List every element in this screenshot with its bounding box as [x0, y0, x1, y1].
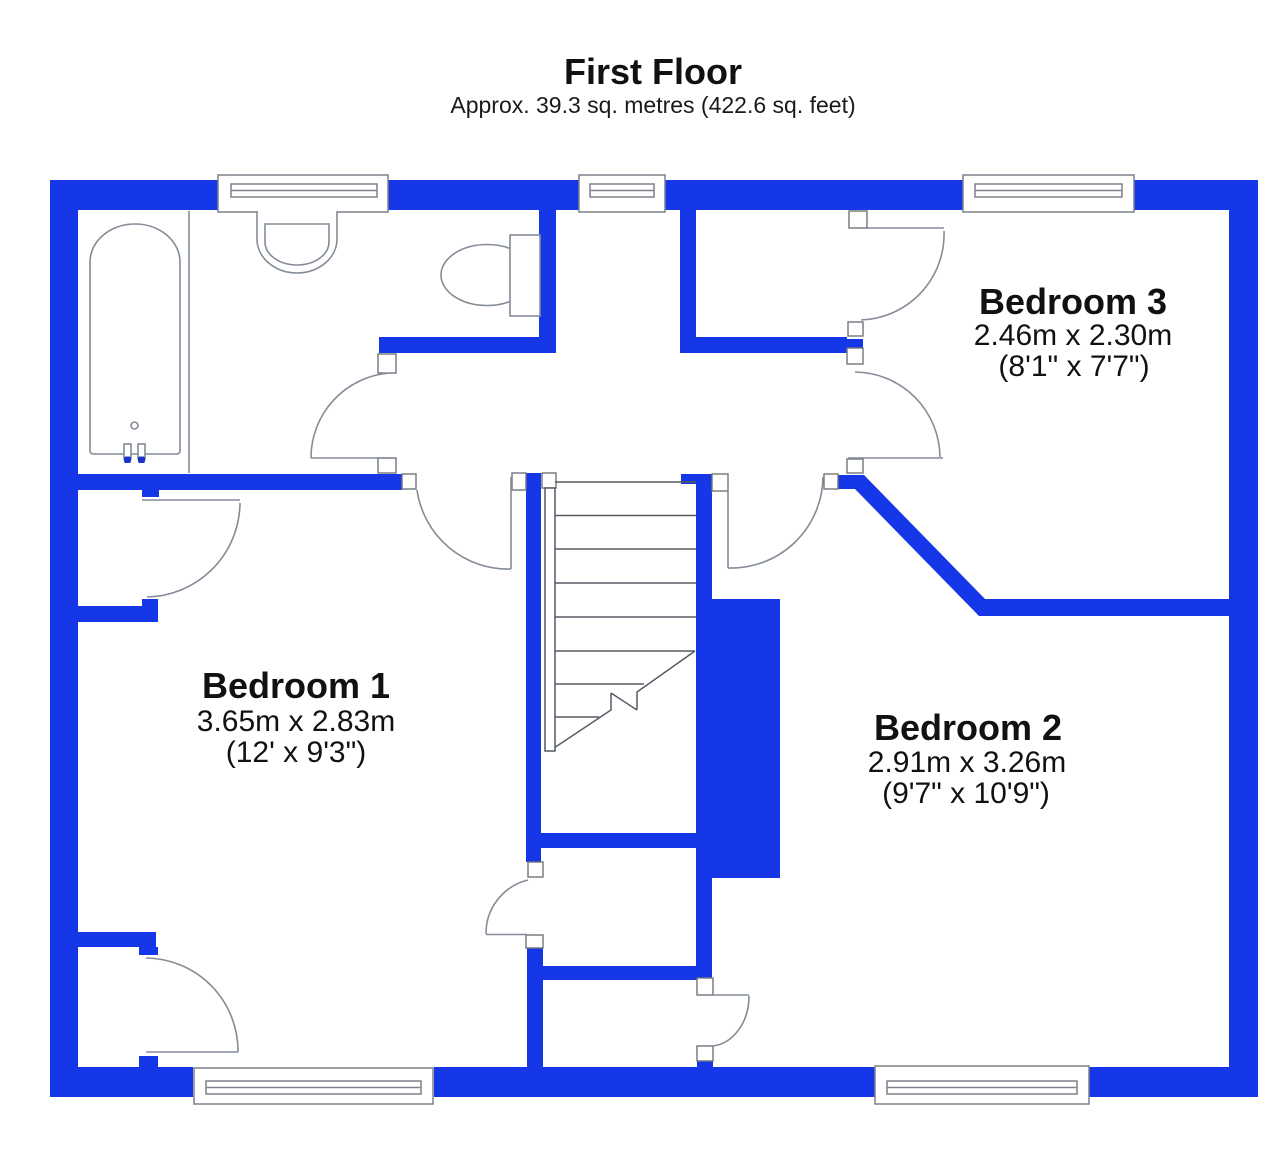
svg-text:2.46m x 2.30m: 2.46m x 2.30m [974, 319, 1172, 352]
svg-text:Bedroom 3: Bedroom 3 [979, 281, 1167, 322]
svg-text:Approx. 39.3 sq. metres (422.6: Approx. 39.3 sq. metres (422.6 sq. feet) [450, 92, 855, 118]
svg-text:(8'1" x 7'7"): (8'1" x 7'7") [998, 350, 1149, 383]
svg-text:Bedroom 2: Bedroom 2 [874, 707, 1062, 748]
svg-text:First Floor: First Floor [564, 51, 742, 92]
svg-text:(12' x 9'3"): (12' x 9'3") [226, 736, 367, 769]
svg-text:3.65m x 2.83m: 3.65m x 2.83m [197, 705, 395, 738]
svg-text:2.91m x 3.26m: 2.91m x 3.26m [868, 746, 1066, 779]
svg-text:Bedroom 1: Bedroom 1 [202, 665, 390, 706]
svg-text:(9'7" x 10'9"): (9'7" x 10'9") [882, 777, 1050, 810]
